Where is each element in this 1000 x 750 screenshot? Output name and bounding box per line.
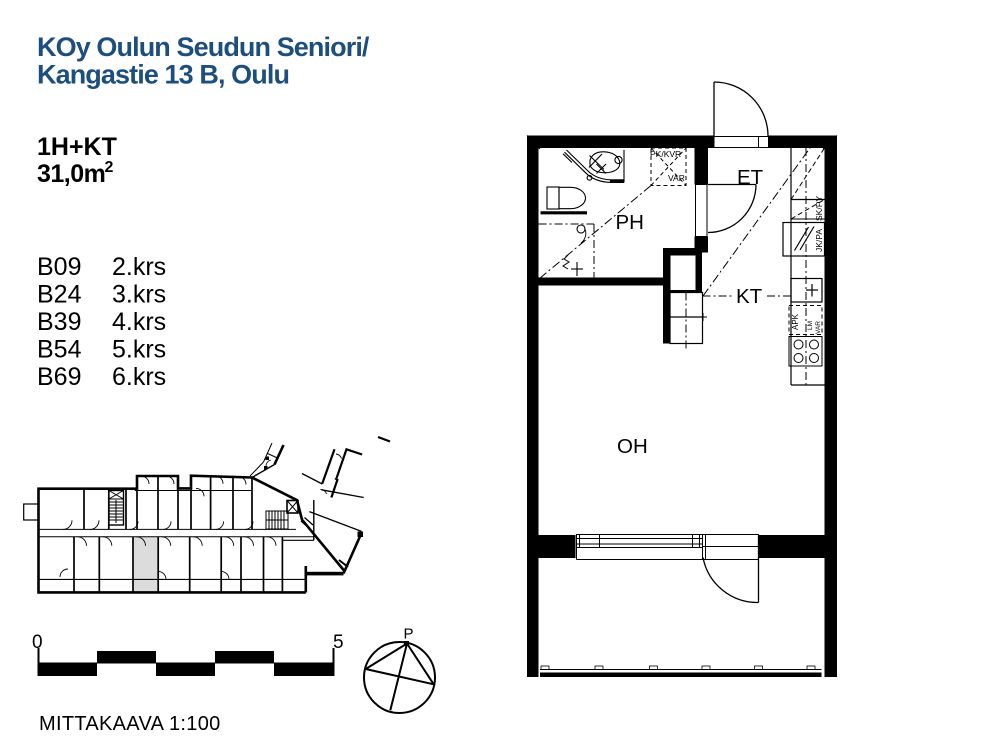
svg-text:P: P — [404, 626, 414, 643]
svg-text:MITTAKAAVA 1:100: MITTAKAAVA 1:100 — [39, 713, 221, 735]
svg-text:OH: OH — [617, 435, 648, 458]
svg-text:KT: KT — [736, 285, 763, 308]
svg-text:KOy Oulun Seudun Seniori/: KOy Oulun Seudun Seniori/ — [37, 32, 370, 62]
svg-text:PH: PH — [616, 211, 644, 234]
svg-text:31,0m: 31,0m — [37, 160, 105, 188]
svg-text:B54: B54 — [37, 336, 82, 364]
svg-text:PK/KVR: PK/KVR — [650, 149, 681, 159]
svg-text:LM: LM — [807, 321, 814, 330]
svg-text:JK/PA: JK/PA — [814, 229, 824, 252]
svg-text:2: 2 — [105, 159, 114, 176]
svg-text:1H+KT: 1H+KT — [37, 133, 117, 161]
svg-text:5.krs: 5.krs — [112, 336, 166, 364]
svg-text:Kangastie 13 B, Oulu: Kangastie 13 B, Oulu — [37, 60, 289, 90]
svg-text:B09: B09 — [37, 253, 81, 281]
svg-text:B24: B24 — [37, 281, 82, 309]
svg-text:APK: APK — [791, 313, 800, 330]
svg-text:SK/PY: SK/PY — [814, 196, 824, 221]
svg-text:5: 5 — [333, 632, 344, 653]
svg-text:3.krs: 3.krs — [112, 281, 166, 309]
svg-text:B39: B39 — [37, 308, 81, 336]
svg-text:ET: ET — [737, 166, 764, 189]
svg-text:6.krs: 6.krs — [112, 363, 166, 391]
svg-text:VAR: VAR — [668, 173, 685, 183]
svg-text:B69: B69 — [37, 363, 81, 391]
svg-text:4.krs: 4.krs — [112, 308, 166, 336]
svg-text:0: 0 — [32, 632, 43, 653]
svg-text:2.krs: 2.krs — [112, 253, 166, 281]
svg-text:VAR: VAR — [815, 321, 822, 334]
